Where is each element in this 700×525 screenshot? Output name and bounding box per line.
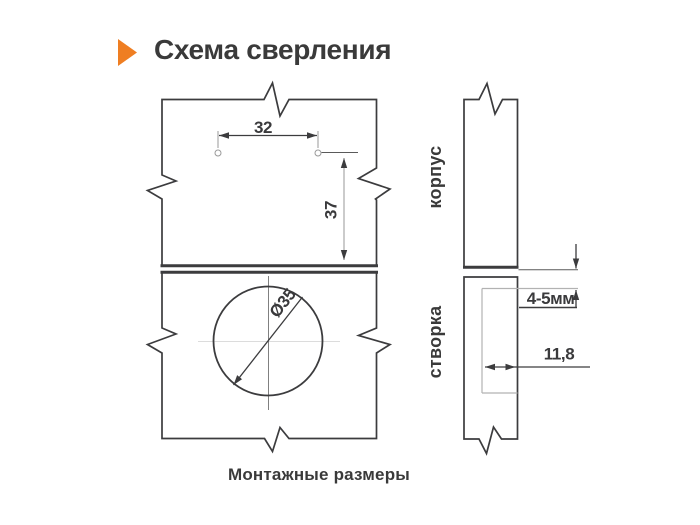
side-body-panel xyxy=(464,84,518,267)
gap-value: 4-5мм xyxy=(527,289,575,308)
side-body-label: корпус xyxy=(425,145,445,208)
screw-hole-left xyxy=(215,150,221,156)
dim-32-value: 32 xyxy=(254,118,272,137)
drilling-scheme-page: Схема сверления 32 37 xyxy=(0,0,700,525)
side-door-label: створка xyxy=(425,305,445,378)
screw-hole-right xyxy=(315,150,321,156)
front-body-panel xyxy=(148,83,391,265)
side-door-panel xyxy=(464,277,518,454)
front-view: 32 37 Ø35 xyxy=(148,83,391,452)
drilling-diagram: 32 37 Ø35 корпус створка xyxy=(0,0,700,525)
depth-value: 11,8 xyxy=(544,345,575,364)
drawing-caption: Монтажные размеры xyxy=(119,465,519,485)
side-view: корпус створка 4-5мм 11,8 xyxy=(425,84,590,454)
dim-37-value: 37 xyxy=(322,201,341,219)
cup-diameter-value: Ø35 xyxy=(266,285,300,321)
